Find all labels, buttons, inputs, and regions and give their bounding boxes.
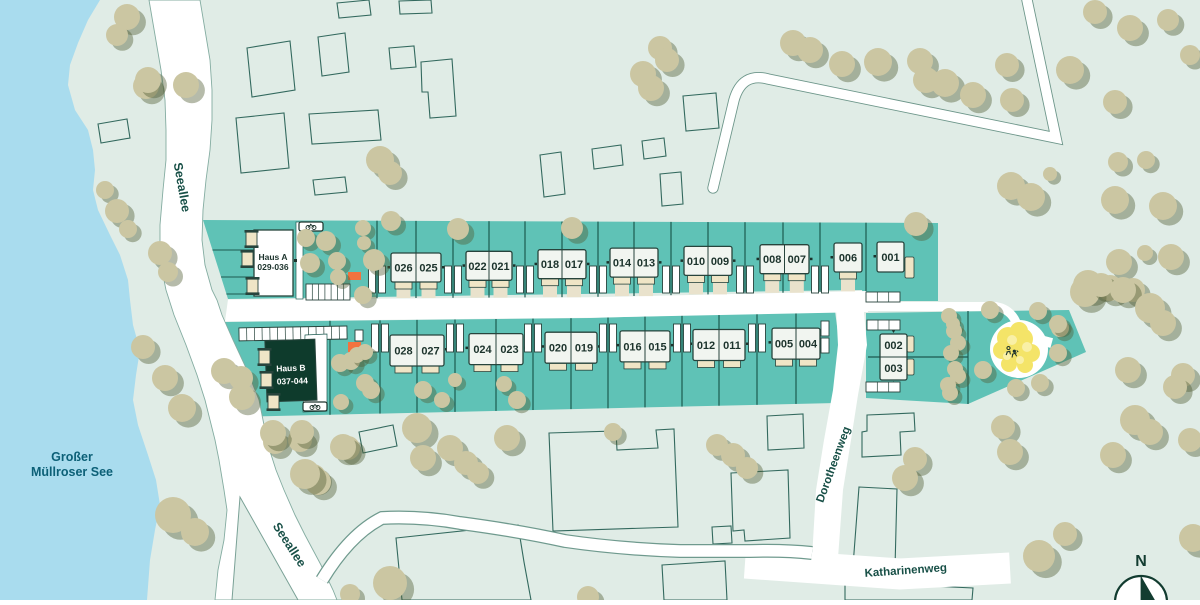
svg-text:Haus A: Haus A	[259, 252, 288, 262]
svg-text:N: N	[1135, 553, 1147, 570]
svg-text:014: 014	[613, 258, 632, 270]
svg-text:020: 020	[549, 343, 567, 355]
svg-text:004: 004	[799, 339, 818, 351]
svg-text:009: 009	[711, 256, 729, 268]
svg-text:001: 001	[881, 252, 899, 264]
svg-text:013: 013	[637, 258, 655, 270]
svg-text:012: 012	[697, 340, 715, 352]
svg-text:015: 015	[648, 341, 666, 353]
svg-text:010: 010	[687, 256, 705, 268]
svg-text:007: 007	[788, 254, 806, 266]
svg-text:011: 011	[723, 340, 741, 352]
svg-text:003: 003	[884, 363, 902, 375]
svg-text:037-044: 037-044	[277, 375, 309, 386]
svg-text:028: 028	[394, 346, 412, 358]
svg-text:006: 006	[839, 253, 857, 265]
svg-text:026: 026	[394, 263, 412, 275]
svg-text:029-036: 029-036	[257, 262, 288, 272]
svg-text:Müllroser See: Müllroser See	[31, 465, 113, 479]
svg-text:005: 005	[775, 339, 793, 351]
svg-text:008: 008	[763, 254, 781, 266]
svg-text:016: 016	[623, 341, 641, 353]
svg-text:025: 025	[419, 263, 437, 275]
svg-text:024: 024	[473, 344, 492, 356]
svg-text:019: 019	[575, 343, 593, 355]
svg-text:023: 023	[500, 344, 518, 356]
svg-text:017: 017	[565, 259, 583, 271]
svg-text:021: 021	[491, 261, 509, 273]
svg-text:018: 018	[541, 259, 559, 271]
svg-text:022: 022	[468, 261, 486, 273]
svg-text:Haus B: Haus B	[276, 363, 306, 374]
svg-text:002: 002	[884, 340, 902, 352]
svg-text:Großer: Großer	[51, 450, 93, 464]
svg-text:027: 027	[421, 346, 439, 358]
